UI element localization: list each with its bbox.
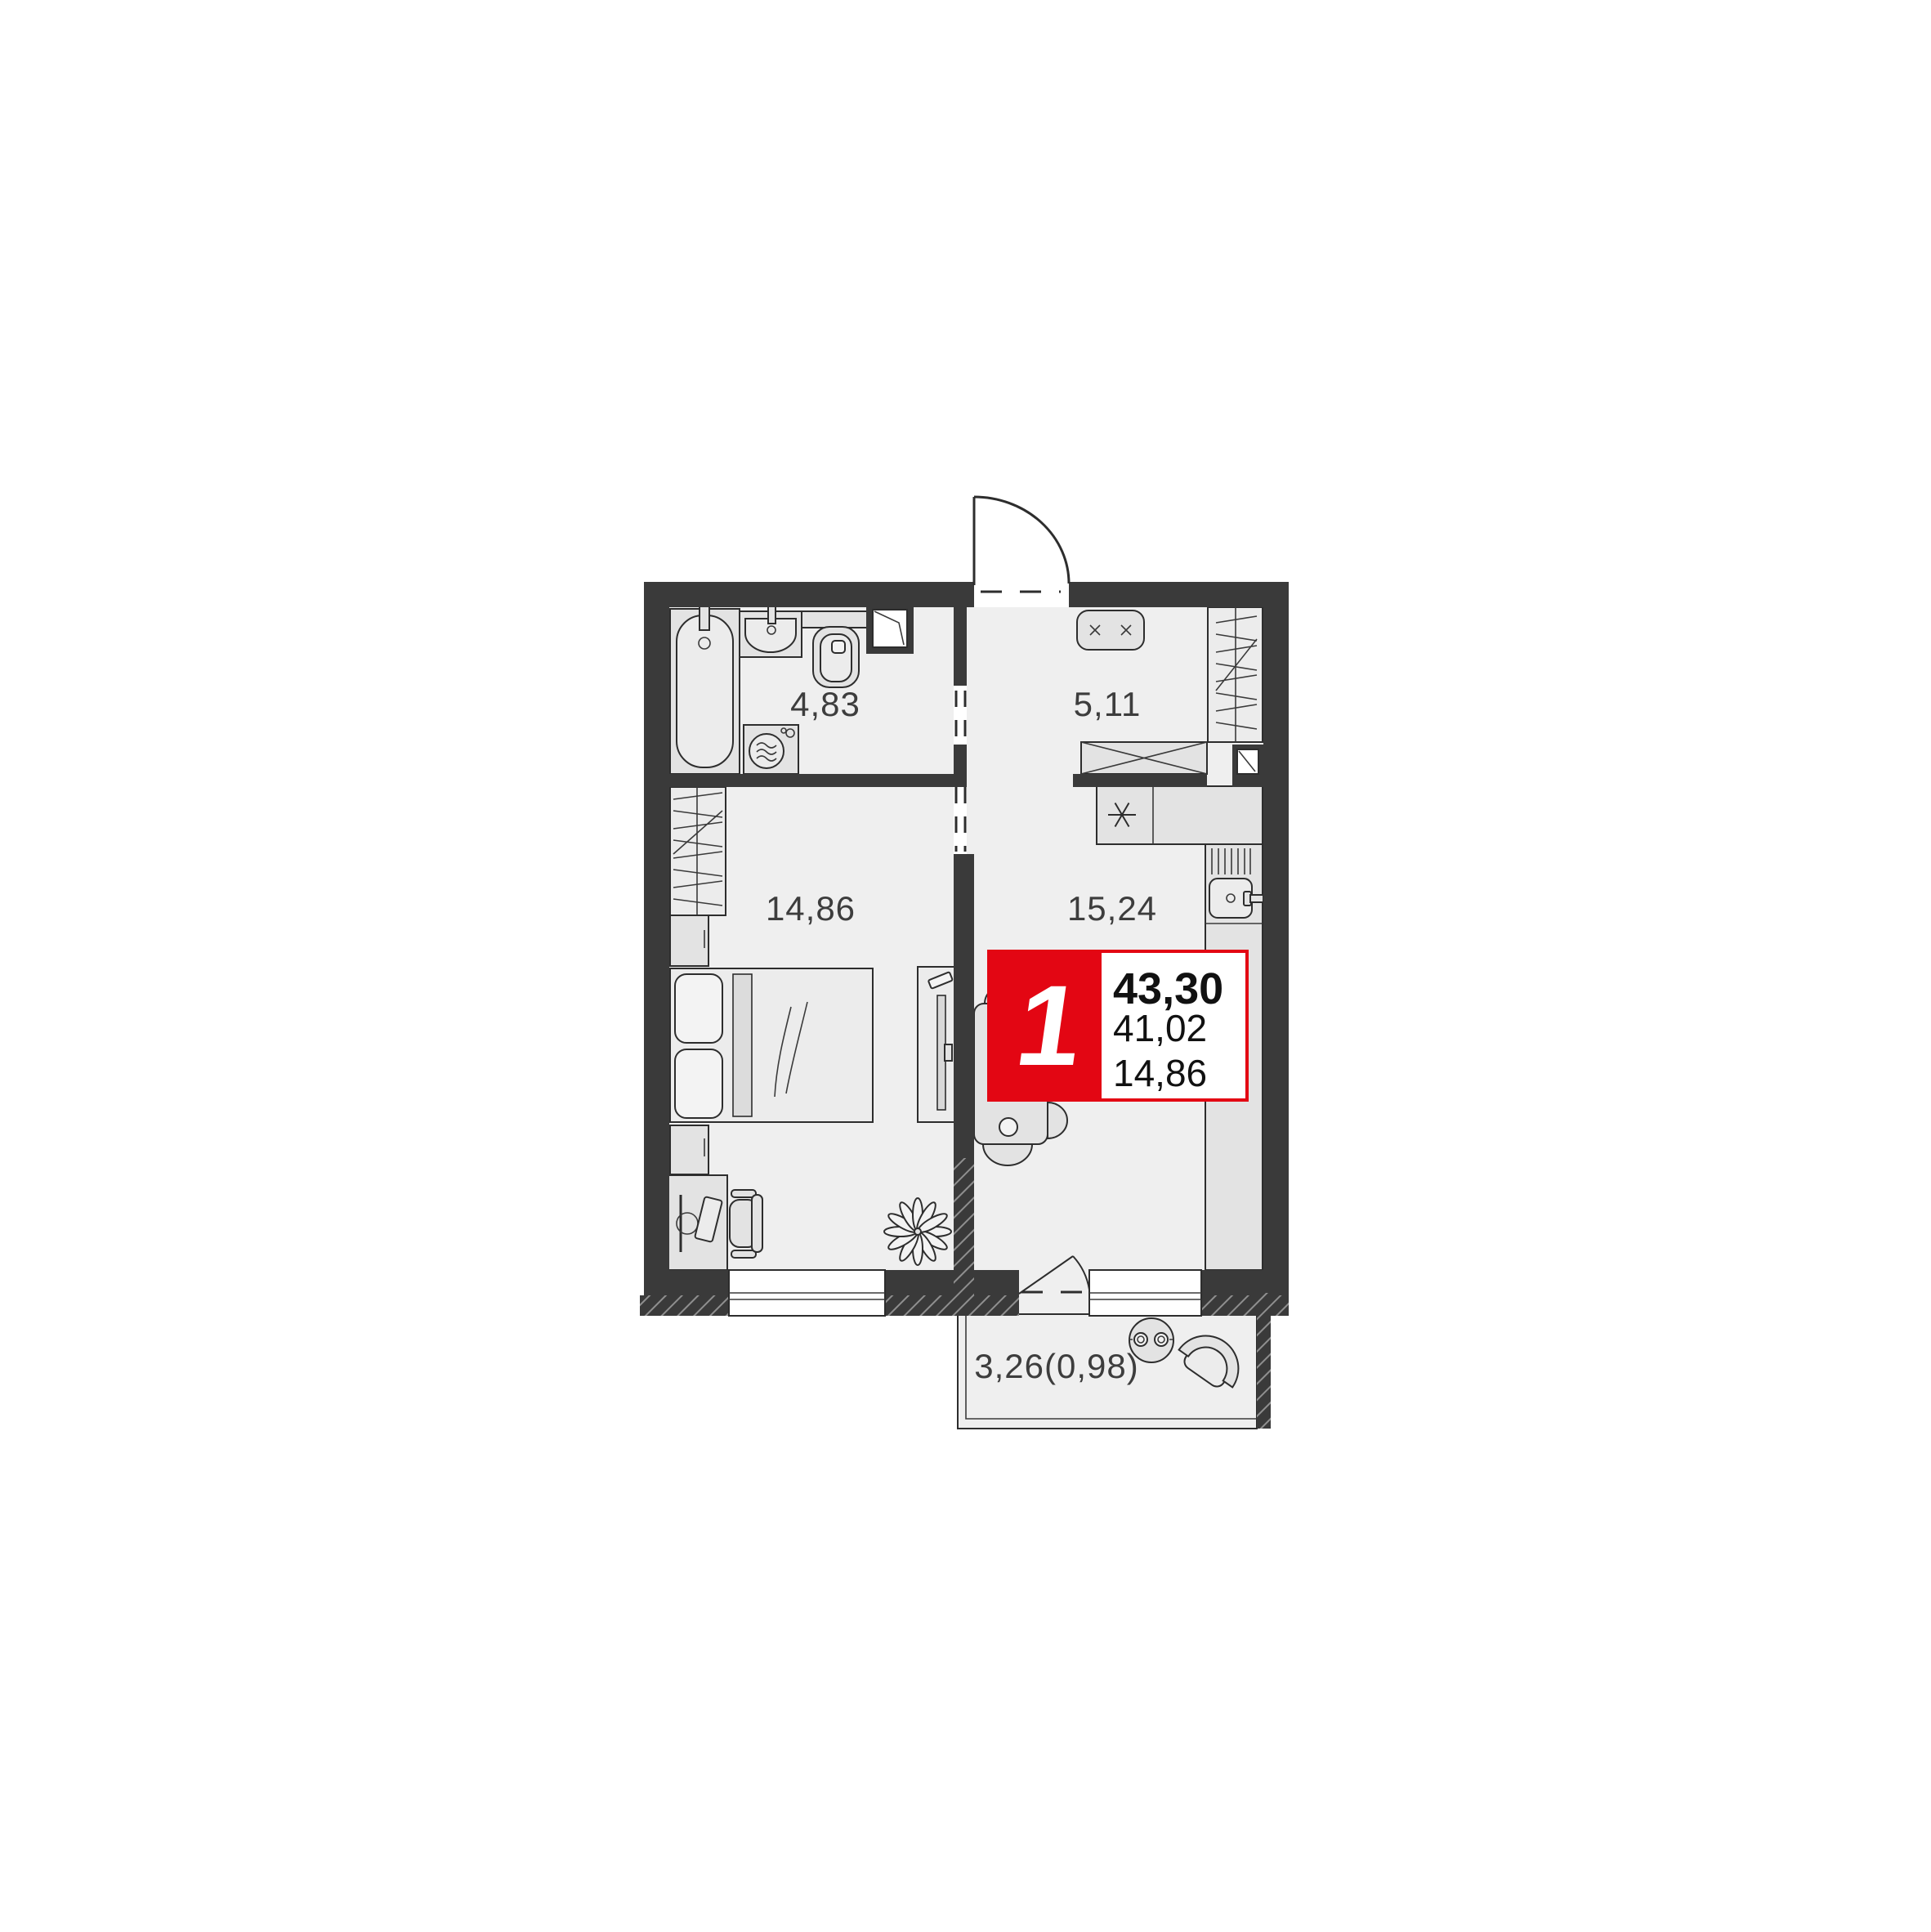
nightstand-icon <box>670 915 708 966</box>
hallway-area-label: 5,11 <box>1074 685 1142 723</box>
wall-hatched-bottom-mid <box>885 1295 1019 1316</box>
tv-stand-icon <box>918 967 954 1122</box>
cup-icon <box>1134 1333 1147 1346</box>
plate-icon <box>999 1118 1017 1136</box>
wall-partition-lower <box>954 854 974 1158</box>
wall-bottom-mid <box>885 1270 1019 1295</box>
wall-hatched-bottom-right <box>1201 1295 1289 1316</box>
desk-icon <box>668 1175 727 1270</box>
wall-hatched-bottom-left <box>640 1295 729 1316</box>
wall-partition-upper <box>954 607 967 686</box>
pillow-icon <box>675 974 722 1043</box>
kitchen-living-area-label: 15,24 <box>1067 889 1157 928</box>
vent-shaft-kitchen-icon <box>1232 745 1263 787</box>
vent-shaft-bathroom-icon <box>866 607 914 654</box>
wall-left <box>644 582 669 1295</box>
wall-bottom-right <box>1201 1270 1289 1295</box>
wall-bathroom-bottom <box>669 774 967 787</box>
cup-icon <box>1155 1333 1168 1346</box>
nightstand-icon <box>670 1125 708 1174</box>
toilet-icon <box>813 627 859 687</box>
bathroom-area-label: 4,83 <box>790 685 860 723</box>
badge-area-total: 43,30 <box>1113 964 1223 1013</box>
wall-right <box>1263 582 1289 1295</box>
electric-panel-icon <box>1077 610 1144 650</box>
balcony-area-label: 3,26(0,98) <box>974 1347 1138 1385</box>
bathroom-counter <box>801 611 868 628</box>
wall-hatched-partition <box>954 1158 974 1316</box>
balcony-window-icon <box>1089 1270 1201 1316</box>
floor-plan-page: { "colors": { "background": "#ffffff", "… <box>0 0 1931 1932</box>
wall-bottom-left <box>644 1270 729 1295</box>
area-badge: 1 43,30 41,02 14,86 <box>987 950 1249 1102</box>
bathtub-icon <box>670 606 740 774</box>
entrance-door-icon <box>974 497 1069 592</box>
wall-top-right <box>1069 582 1289 607</box>
hallway-closet-icon <box>1081 742 1207 774</box>
kitchen-counter-top <box>1097 786 1263 844</box>
bed-icon <box>670 968 873 1122</box>
bedroom-area-label: 14,86 <box>766 889 856 928</box>
bedroom-window-icon <box>729 1270 885 1316</box>
badge-area-living: 14,86 <box>1113 1052 1207 1094</box>
floor-plan: 4,83 5,11 14,86 15,24 3,26(0,98) 1 43,30… <box>0 0 1931 1932</box>
bathroom-sink-icon <box>740 602 802 657</box>
badge-area-secondary: 41,02 <box>1113 1007 1207 1049</box>
wall-kitchen <box>1073 774 1207 787</box>
bedroom-wardrobe-icon <box>670 787 726 915</box>
wall-partition-stub <box>954 745 967 774</box>
pillow-icon <box>675 1049 722 1118</box>
hallway-wardrobe-icon <box>1208 607 1263 742</box>
bed-runner <box>733 974 752 1116</box>
wall-top-left <box>644 582 974 607</box>
washing-machine-icon <box>744 725 798 774</box>
wall-hatched-balcony-right <box>1257 1293 1271 1429</box>
